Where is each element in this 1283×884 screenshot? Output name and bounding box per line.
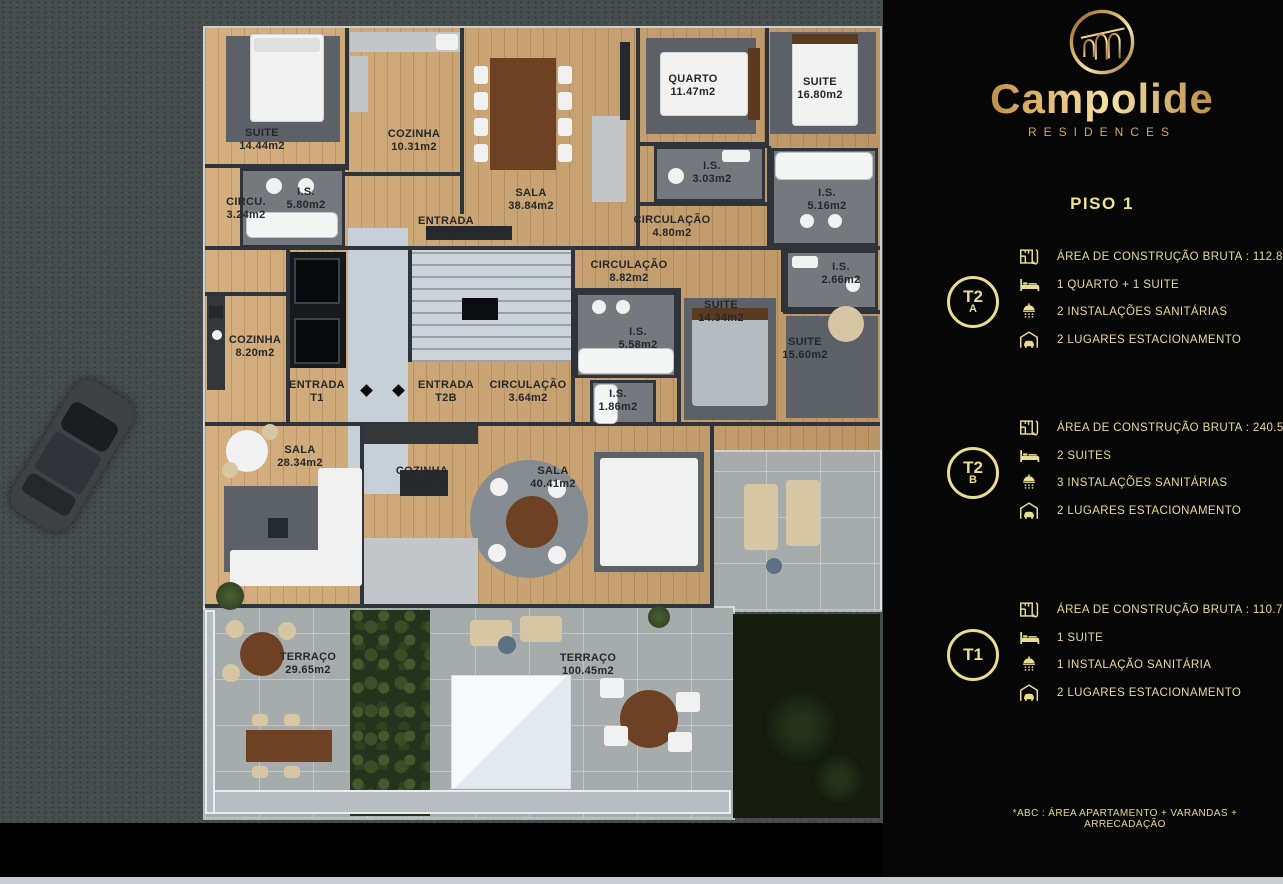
room-name: CIRCULAÇÃO bbox=[591, 259, 668, 272]
brand-tagline: RESIDENCES bbox=[921, 125, 1283, 139]
sink bbox=[592, 300, 606, 314]
aqueduct-arches-logo-icon bbox=[921, 8, 1283, 81]
room-area: 100.45m2 bbox=[560, 665, 617, 678]
room-label: SALA28.34m2 bbox=[277, 444, 323, 470]
hedge-planter bbox=[350, 610, 430, 816]
wall bbox=[575, 288, 677, 292]
kitchen-cabinets bbox=[364, 538, 478, 604]
chair bbox=[558, 118, 572, 136]
garage-icon bbox=[1017, 329, 1041, 351]
room-area: 28.34m2 bbox=[277, 457, 323, 470]
room-label: ENTRADAT1 bbox=[289, 379, 345, 405]
wall bbox=[345, 28, 349, 170]
spec-row: ÁREA DE CONSTRUÇÃO BRUTA : 110.70м2* bbox=[1017, 598, 1283, 622]
bed-icon bbox=[1017, 445, 1041, 467]
wall bbox=[205, 164, 345, 168]
spec-row: 1 SUITE bbox=[1017, 626, 1283, 650]
sink bbox=[792, 256, 818, 268]
spec-text: 1 INSTALAÇÃO SANITÁRIA bbox=[1057, 659, 1211, 671]
chair bbox=[474, 118, 488, 136]
room-name: I.S. bbox=[598, 388, 637, 401]
room-label: SALA40.41m2 bbox=[530, 465, 576, 491]
pillow bbox=[254, 38, 320, 52]
room-area: 5.80m2 bbox=[286, 199, 325, 212]
spec-text: ÁREA DE CONSTRUÇÃO BRUTA : 110.70м2* bbox=[1057, 604, 1283, 616]
room-name: I.S. bbox=[618, 326, 657, 339]
headboard bbox=[792, 34, 858, 44]
room-label: ENTRADAT2B bbox=[418, 379, 474, 405]
lounger bbox=[786, 480, 820, 546]
plant bbox=[648, 606, 670, 628]
bathtub bbox=[775, 152, 873, 180]
chair bbox=[474, 66, 488, 84]
spec-row: 1 QUARTO + 1 SUITE bbox=[1017, 273, 1283, 297]
sofa bbox=[592, 116, 626, 202]
side-table bbox=[636, 516, 652, 532]
spec-text: 2 LUGARES ESTACIONAMENTO bbox=[1057, 687, 1241, 699]
wall bbox=[345, 172, 464, 176]
sofa bbox=[230, 550, 362, 586]
shower-icon bbox=[1017, 301, 1041, 323]
chair bbox=[262, 424, 278, 440]
armchair bbox=[828, 306, 864, 342]
terrace-parapet bbox=[207, 790, 731, 814]
oven bbox=[209, 306, 223, 318]
room-name: ENTRADA bbox=[418, 379, 474, 392]
room-name: COZINHA bbox=[396, 465, 448, 478]
spec-text: 1 QUARTO + 1 SUITE bbox=[1057, 279, 1179, 291]
room-label: I.S.5.58m2 bbox=[618, 326, 657, 352]
unit-t1: T1ÁREA DE CONSTRUÇÃO BRUTA : 110.70м2*1 … bbox=[921, 596, 1283, 712]
room-area: T2A bbox=[418, 228, 474, 241]
wall bbox=[781, 250, 785, 312]
headboard bbox=[748, 48, 760, 120]
chair bbox=[284, 714, 300, 726]
room-label: I.S.5.80m2 bbox=[286, 186, 325, 212]
spec-row: 1 INSTALAÇÃO SANITÁRIA bbox=[1017, 653, 1283, 677]
room-name: QUARTO bbox=[668, 73, 717, 86]
room-area: 14.34m2 bbox=[698, 312, 744, 325]
bed-icon bbox=[1017, 627, 1041, 649]
shower-icon bbox=[1017, 654, 1041, 676]
chair bbox=[668, 732, 692, 752]
room-name: CIRCU. bbox=[226, 196, 266, 209]
chair bbox=[548, 546, 566, 564]
wall bbox=[677, 288, 681, 424]
sofa bbox=[600, 458, 698, 566]
room-label: CIRCULAÇÃO4.80m2 bbox=[634, 214, 711, 240]
spec-text: 2 INSTALAÇÕES SANITÁRIAS bbox=[1057, 306, 1227, 318]
room-name: SUITE bbox=[797, 76, 843, 89]
sink bbox=[266, 178, 282, 194]
chair bbox=[676, 692, 700, 712]
spec-text: 2 LUGARES ESTACIONAMENTO bbox=[1057, 505, 1241, 517]
wall bbox=[205, 422, 880, 426]
spec-text: 2 SUITES bbox=[1057, 450, 1111, 462]
room-area: 10.31m2 bbox=[388, 141, 440, 154]
room-area: 8.82m2 bbox=[591, 272, 668, 285]
room-name: CIRCULAÇÃO bbox=[634, 214, 711, 227]
room-label: COZINHA10.31m2 bbox=[388, 128, 440, 154]
parked-car bbox=[4, 373, 141, 538]
wall bbox=[640, 202, 771, 206]
palm-tree bbox=[812, 752, 866, 806]
toilet bbox=[828, 214, 842, 228]
chair bbox=[284, 766, 300, 778]
spec-text: ÁREA DE CONSTRUÇÃO BRUTA : 240.55 м2* bbox=[1057, 422, 1283, 434]
wall bbox=[765, 28, 769, 148]
wall bbox=[640, 142, 765, 146]
room-label: SUITE14.34m2 bbox=[698, 299, 744, 325]
stair-landing bbox=[462, 298, 498, 320]
room-label: I.S.5.16m2 bbox=[807, 187, 846, 213]
room-area: 15.60m2 bbox=[782, 349, 828, 362]
sink bbox=[212, 330, 222, 340]
room-label: TERRAÇO29.65m2 bbox=[280, 651, 337, 677]
floorplan-scene: SUITE14.44m2COZINHA10.31m2SALA38.84m2QUA… bbox=[0, 0, 883, 823]
room-label: CIRCU.3.24m2 bbox=[226, 196, 266, 222]
unit-t2b: T2BÁREA DE CONSTRUÇÃO BRUTA : 240.55 м2*… bbox=[921, 414, 1283, 530]
tv-console bbox=[620, 42, 630, 120]
outdoor-table bbox=[246, 730, 332, 762]
room-label: I.S.2.66m2 bbox=[821, 261, 860, 287]
garage-icon bbox=[1017, 500, 1041, 522]
room-name: SALA bbox=[530, 465, 576, 478]
chair bbox=[222, 664, 240, 682]
chair bbox=[278, 622, 296, 640]
room-area: 3.03m2 bbox=[692, 173, 731, 186]
room-area: 5.58m2 bbox=[618, 339, 657, 352]
chair bbox=[558, 144, 572, 162]
room-area: 3.24m2 bbox=[226, 209, 266, 222]
spec-row: 2 INSTALAÇÕES SANITÁRIAS bbox=[1017, 300, 1283, 324]
chair bbox=[474, 144, 488, 162]
page-bottom-strip bbox=[0, 877, 1283, 884]
unit-badge: T1 bbox=[947, 629, 999, 681]
wall bbox=[767, 146, 771, 246]
room-area: 40.41m2 bbox=[530, 478, 576, 491]
room-name: ENTRADA bbox=[418, 215, 474, 228]
chair bbox=[222, 462, 238, 478]
room-label: CIRCULAÇÃO3.64m2 bbox=[490, 379, 567, 405]
chair bbox=[252, 714, 268, 726]
outdoor-table bbox=[240, 632, 284, 676]
room-name: CIRCULAÇÃO bbox=[490, 379, 567, 392]
floorplan-icon bbox=[1017, 599, 1041, 621]
wall bbox=[460, 28, 464, 214]
room-area: 14.44m2 bbox=[239, 140, 285, 153]
sink bbox=[616, 300, 630, 314]
chair bbox=[558, 92, 572, 110]
room-label: ENTRADAT2A bbox=[418, 215, 474, 241]
room-area: 29.65m2 bbox=[280, 664, 337, 677]
chair bbox=[600, 678, 624, 698]
room-area: 8.20m2 bbox=[229, 347, 281, 360]
unit-badge-sub: B bbox=[969, 476, 977, 486]
room-label: COZINHA12.20m2 bbox=[396, 465, 448, 491]
unit-badge-sub: A bbox=[969, 305, 977, 315]
room-label: CIRCULAÇÃO8.82m2 bbox=[591, 259, 668, 285]
spec-row: 2 LUGARES ESTACIONAMENTO bbox=[1017, 328, 1283, 352]
room-name: SUITE bbox=[239, 127, 285, 140]
chair bbox=[490, 478, 508, 496]
chair bbox=[558, 66, 572, 84]
lounger bbox=[520, 616, 562, 642]
wall bbox=[710, 426, 714, 608]
toilet bbox=[668, 168, 684, 184]
pouf bbox=[268, 518, 288, 538]
room-name: I.S. bbox=[807, 187, 846, 200]
room-name: SUITE bbox=[782, 336, 828, 349]
unit-t2a: T2AÁREA DE CONSTRUÇÃO BRUTA : 112.85 м2*… bbox=[921, 243, 1283, 359]
room-name: TERRAÇO bbox=[560, 652, 617, 665]
room-area: 4.80m2 bbox=[634, 227, 711, 240]
room-area: 38.84m2 bbox=[508, 200, 554, 213]
room-label: SUITE15.60m2 bbox=[782, 336, 828, 362]
chair bbox=[226, 620, 244, 638]
room-name: COZINHA bbox=[229, 334, 281, 347]
spec-text: 3 INSTALAÇÕES SANITÁRIAS bbox=[1057, 477, 1227, 489]
chair bbox=[474, 92, 488, 110]
wall bbox=[408, 246, 412, 362]
room-name: I.S. bbox=[692, 160, 731, 173]
room-name: COZINHA bbox=[388, 128, 440, 141]
room-label: SALA38.84m2 bbox=[508, 187, 554, 213]
garage-icon bbox=[1017, 682, 1041, 704]
unit-badge-main: T1 bbox=[963, 647, 983, 662]
bed-icon bbox=[1017, 274, 1041, 296]
info-panel-content: Campolide RESIDENCES PISO 1 T2AÁREA DE C… bbox=[921, 0, 1283, 884]
spec-row: ÁREA DE CONSTRUÇÃO BRUTA : 112.85 м2* bbox=[1017, 245, 1283, 269]
spec-row: 2 LUGARES ESTACIONAMENTO bbox=[1017, 681, 1283, 705]
side-table bbox=[498, 636, 516, 654]
terrace-parapet bbox=[205, 610, 215, 814]
chair bbox=[488, 544, 506, 562]
room-area: T1 bbox=[289, 392, 345, 405]
elevator bbox=[294, 258, 340, 304]
wall bbox=[205, 604, 714, 608]
spec-text: ÁREA DE CONSTRUÇÃO BRUTA : 112.85 м2* bbox=[1057, 251, 1283, 263]
spec-text: 2 LUGARES ESTACIONAMENTO bbox=[1057, 334, 1241, 346]
room-label: TERRAÇO100.45m2 bbox=[560, 652, 617, 678]
bed bbox=[692, 316, 768, 406]
dining-table bbox=[490, 58, 556, 170]
spec-row: 2 LUGARES ESTACIONAMENTO bbox=[1017, 499, 1283, 523]
room-area: 3.64m2 bbox=[490, 392, 567, 405]
room-area: 2.66m2 bbox=[821, 274, 860, 287]
plant bbox=[216, 582, 244, 610]
room-label: SUITE14.44m2 bbox=[239, 127, 285, 153]
spec-text: 1 SUITE bbox=[1057, 632, 1103, 644]
room-label: QUARTO11.47m2 bbox=[668, 73, 717, 99]
lounger bbox=[744, 484, 778, 550]
room-label: I.S.3.03m2 bbox=[692, 160, 731, 186]
wall bbox=[205, 246, 880, 250]
kitchen-counter bbox=[350, 56, 368, 112]
room-area: 11.47m2 bbox=[668, 86, 717, 99]
floorplan-icon bbox=[1017, 417, 1041, 439]
room-name: I.S. bbox=[286, 186, 325, 199]
room-name: TERRAÇO bbox=[280, 651, 337, 664]
wall bbox=[571, 246, 575, 424]
room-name: SUITE bbox=[698, 299, 744, 312]
spec-row: 3 INSTALAÇÕES SANITÁRIAS bbox=[1017, 471, 1283, 495]
floor-title: PISO 1 bbox=[921, 194, 1283, 214]
room-label: SUITE16.80m2 bbox=[797, 76, 843, 102]
pergola-canopy bbox=[452, 676, 570, 788]
kitchen-counter bbox=[364, 424, 478, 444]
chair bbox=[604, 726, 628, 746]
room-label: COZINHA8.20m2 bbox=[229, 334, 281, 360]
room-area: 5.16m2 bbox=[807, 200, 846, 213]
spec-row: 2 SUITES bbox=[1017, 444, 1283, 468]
spec-row: ÁREA DE CONSTRUÇÃO BRUTA : 240.55 м2* bbox=[1017, 416, 1283, 440]
side-table bbox=[766, 558, 782, 574]
room-area: T2B bbox=[418, 392, 474, 405]
room-label: I.S.1.86m2 bbox=[598, 388, 637, 414]
fridge bbox=[436, 34, 458, 50]
footnote: *ABC : ÁREA APARTAMENTO + VARANDAS + ARR… bbox=[981, 808, 1269, 830]
chair bbox=[252, 766, 268, 778]
room-area: 16.80m2 bbox=[797, 89, 843, 102]
room-name: I.S. bbox=[821, 261, 860, 274]
elevator bbox=[294, 318, 340, 364]
info-panel: Campolide RESIDENCES PISO 1 T2AÁREA DE C… bbox=[883, 0, 1283, 884]
room-name: ENTRADA bbox=[289, 379, 345, 392]
room-area: 1.86m2 bbox=[598, 401, 637, 414]
round-table bbox=[506, 496, 558, 548]
shower-icon bbox=[1017, 472, 1041, 494]
stair-lobby bbox=[348, 228, 408, 494]
room-name: SALA bbox=[277, 444, 323, 457]
unit-badge: T2B bbox=[947, 447, 999, 499]
room-area: 12.20m2 bbox=[396, 478, 448, 491]
floorplan-icon bbox=[1017, 246, 1041, 268]
toilet bbox=[800, 214, 814, 228]
room-name: SALA bbox=[508, 187, 554, 200]
brand-name: Campolide bbox=[921, 75, 1283, 123]
unit-badge: T2A bbox=[947, 276, 999, 328]
